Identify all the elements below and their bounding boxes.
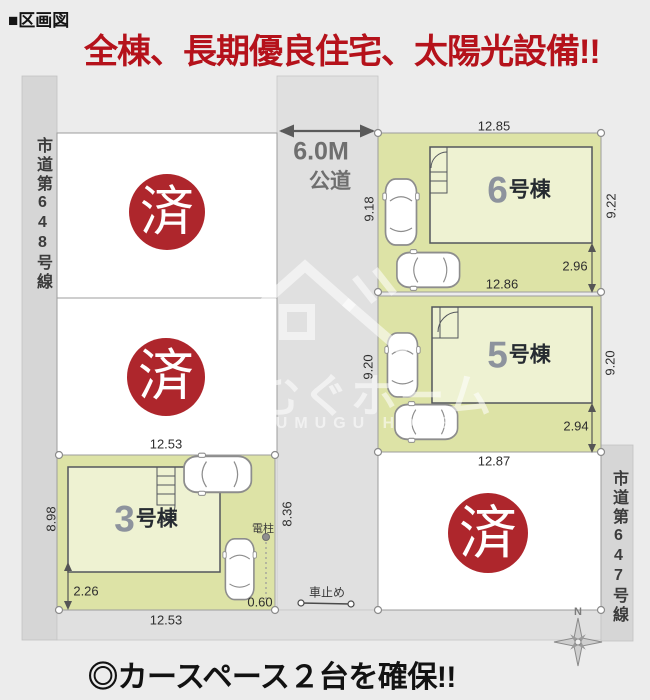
dim-lot6-setback: 2.96: [562, 259, 587, 274]
lot3-number: 3: [114, 501, 135, 538]
car-icon: [223, 539, 256, 600]
road-label-left: 市道第648号線: [30, 137, 54, 292]
compass-north-label: N: [574, 606, 582, 618]
road-front-type: 公道: [309, 165, 351, 195]
dim-lot6-right: 9.22: [604, 193, 619, 218]
site-plan-page: つむぐホーム TSUMUGU HOME ■区画図 全棟、長期優良住宅、太陽光設備…: [0, 0, 650, 700]
lot5-number: 5: [487, 337, 508, 374]
dim-lot3-left: 8.98: [44, 506, 59, 531]
dim-lot5-left: 9.20: [361, 354, 376, 379]
lot6-number: 6: [487, 172, 508, 209]
dim-lot5-right: 9.20: [603, 350, 618, 375]
lot6-suffix: 号棟: [509, 180, 551, 201]
lot6-name: 6 号棟: [487, 172, 551, 209]
car-icon: [397, 250, 460, 291]
dim-lot6-bottom: 12.86: [486, 277, 519, 292]
sold-stamp-lot1: 済: [129, 174, 205, 250]
road-label-right: 市道第647号線: [606, 470, 630, 625]
sold-text: 済: [140, 185, 194, 239]
lot5-name: 5 号棟: [487, 337, 551, 374]
dim-lot5-setback: 2.94: [563, 419, 588, 434]
utility-pole-label: 電柱: [252, 520, 274, 536]
car-stop-label: 車止め: [309, 584, 345, 601]
sold-stamp-lot2: 済: [127, 338, 205, 416]
footer-note: ◎カースペース２台を確保!!: [88, 652, 456, 696]
dim-lot3-top: 12.53: [150, 437, 183, 452]
dim-lot3-corner: 0.60: [247, 595, 272, 610]
sold-stamp-lot4: 済: [448, 493, 528, 573]
dim-lot5-bottom: 12.87: [478, 454, 511, 469]
lot3-name: 3 号棟: [114, 501, 178, 538]
lot3-suffix: 号棟: [136, 509, 178, 530]
dim-lot3-right: 8.36: [280, 501, 295, 526]
car-icon: [184, 453, 251, 495]
dim-lot6-top: 12.85: [478, 119, 511, 134]
road-front-width: 6.0M: [293, 138, 349, 167]
lot5-suffix: 号棟: [509, 345, 551, 366]
dim-lot3-setback: 2.26: [73, 584, 98, 599]
sold-text: 済: [459, 504, 517, 562]
dim-lot3-bottom: 12.53: [150, 613, 183, 628]
section-title: ■区画図: [8, 6, 69, 31]
car-icon: [385, 333, 420, 397]
dim-lot6-left: 9.18: [362, 196, 377, 221]
headline: 全棟、長期優良住宅、太陽光設備!!: [84, 24, 646, 73]
car-icon: [395, 402, 458, 443]
sold-text: 済: [138, 349, 194, 405]
car-icon: [383, 179, 419, 245]
